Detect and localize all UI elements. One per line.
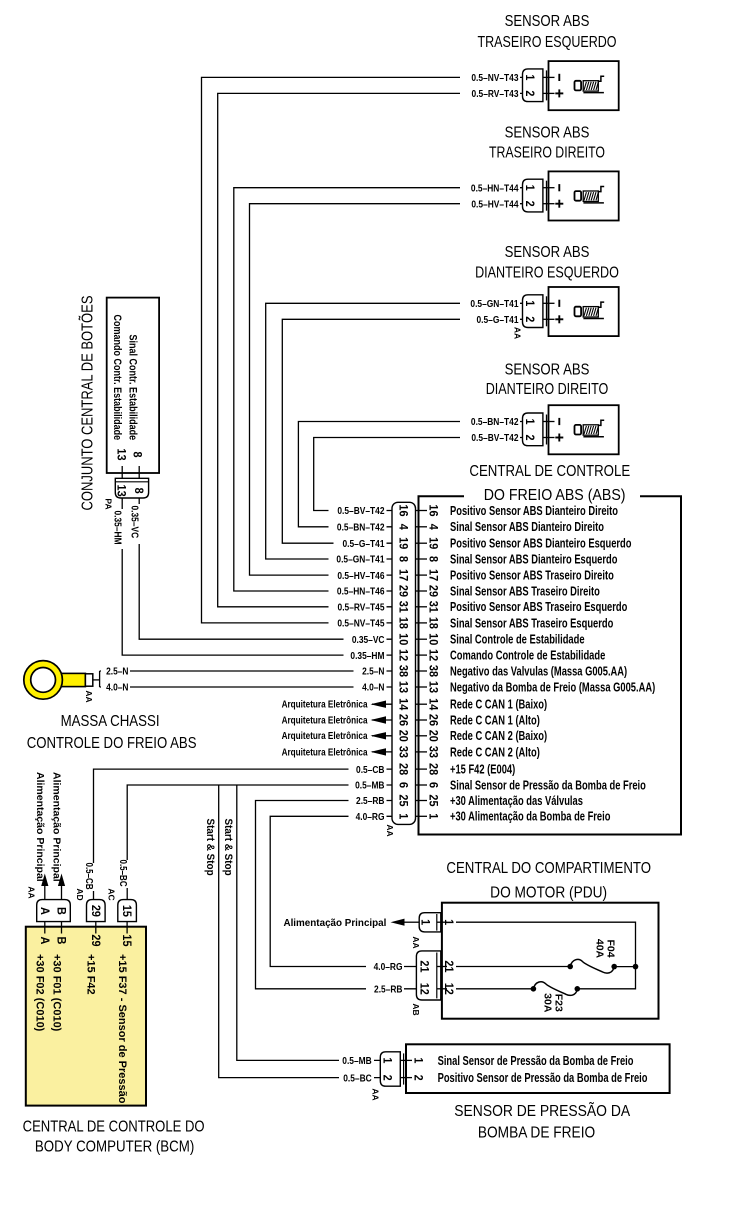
svg-text:+30 Alimentação das Válvulas: +30 Alimentação das Válvulas: [450, 795, 583, 809]
svg-text:8: 8: [130, 451, 142, 457]
svg-text:15: 15: [120, 934, 132, 946]
svg-text:33: 33: [426, 746, 438, 758]
svg-text:Arquitetura Eletrônica: Arquitetura Eletrônica: [282, 713, 369, 725]
svg-text:Sinal Sensor de Pressão da Bom: Sinal Sensor de Pressão da Bomba de Frei…: [450, 779, 646, 793]
svg-text:Sinal Sensor ABS Dianteiro Esq: Sinal Sensor ABS Dianteiro Esquerdo: [450, 553, 618, 567]
svg-text:16: 16: [396, 504, 408, 516]
svg-text:0.5–GN–T41: 0.5–GN–T41: [470, 298, 519, 310]
svg-text:TRASEIRO DIREITO: TRASEIRO DIREITO: [489, 144, 605, 162]
svg-text:2: 2: [411, 1075, 423, 1081]
svg-text:Start & Stop: Start & Stop: [204, 819, 216, 876]
svg-text:1: 1: [411, 1057, 423, 1063]
svg-text:AA: AA: [27, 886, 37, 898]
svg-text:6: 6: [396, 782, 408, 788]
svg-text:12: 12: [426, 649, 438, 661]
svg-text:2.5–N: 2.5–N: [106, 666, 129, 678]
svg-text:Sinal Contr. Estabilidade: Sinal Contr. Estabilidade: [126, 335, 138, 441]
svg-text:CENTRAL DE CONTROLE: CENTRAL DE CONTROLE: [469, 463, 630, 480]
svg-text:12: 12: [418, 983, 430, 995]
svg-text:1: 1: [380, 1057, 392, 1063]
svg-text:2: 2: [523, 201, 535, 207]
svg-text:CONTROLE DO FREIO ABS: CONTROLE DO FREIO ABS: [27, 735, 197, 752]
svg-text:0.35–HM: 0.35–HM: [111, 511, 123, 545]
svg-text:0.5–NV–T43: 0.5–NV–T43: [471, 72, 518, 84]
svg-text:15: 15: [120, 905, 132, 917]
svg-text:Comando Contr. Estabilidade: Comando Contr. Estabilidade: [111, 315, 123, 441]
svg-text:30A: 30A: [541, 993, 553, 1013]
svg-text:Positivo Sensor ABS Traseiro D: Positivo Sensor ABS Traseiro Direito: [450, 569, 614, 583]
svg-text:AA: AA: [385, 824, 395, 836]
svg-text:1: 1: [523, 185, 535, 191]
svg-text:40A: 40A: [593, 939, 605, 959]
svg-text:0.5–BV–T42: 0.5–BV–T42: [471, 432, 518, 444]
svg-text:0.5–MB: 0.5–MB: [355, 780, 385, 792]
svg-text:SENSOR ABS: SENSOR ABS: [505, 124, 590, 141]
svg-text:28: 28: [396, 763, 408, 775]
svg-text:AD: AD: [75, 888, 85, 900]
svg-text:SENSOR ABS: SENSOR ABS: [505, 361, 590, 378]
svg-text:Arquitetura Eletrônica: Arquitetura Eletrônica: [282, 745, 369, 757]
svg-text:6: 6: [426, 782, 438, 788]
svg-text:Rede C CAN 1 (Alto): Rede C CAN 1 (Alto): [450, 714, 540, 728]
svg-text:0.5–HN–T44: 0.5–HN–T44: [471, 183, 519, 195]
svg-text:Alimentação Principal: Alimentação Principal: [283, 918, 386, 929]
svg-text:0.5–CB: 0.5–CB: [356, 764, 385, 776]
svg-text:0.5–RV–T43: 0.5–RV–T43: [472, 88, 519, 100]
svg-text:13: 13: [426, 681, 438, 693]
svg-text:0.5–GN–T41: 0.5–GN–T41: [336, 554, 385, 566]
svg-text:4: 4: [426, 524, 438, 531]
svg-text:0.35–HM: 0.35–HM: [350, 650, 384, 662]
svg-text:+30 Alimentação da Bomba de Fr: +30 Alimentação da Bomba de Freio: [450, 810, 611, 824]
svg-text:20: 20: [426, 730, 438, 742]
svg-text:0.5–HV–T46: 0.5–HV–T46: [337, 570, 384, 582]
svg-text:CONJUNTO CENTRAL DE BOTÕES: CONJUNTO CENTRAL DE BOTÕES: [78, 295, 97, 510]
svg-text:1: 1: [442, 919, 454, 925]
svg-text:CENTRAL DE CONTROLE DO: CENTRAL DE CONTROLE DO: [23, 1118, 205, 1136]
svg-text:AA: AA: [411, 936, 421, 948]
svg-text:DO MOTOR (PDU): DO MOTOR (PDU): [490, 885, 607, 902]
svg-text:2.5–RB: 2.5–RB: [374, 984, 403, 996]
svg-text:2: 2: [523, 90, 535, 96]
svg-text:Negativo da Bomba de Freio (Ma: Negativo da Bomba de Freio (Massa G005.A…: [450, 681, 655, 695]
svg-text:AC: AC: [107, 888, 117, 900]
svg-text:Sinal Sensor de Pressão da Bom: Sinal Sensor de Pressão da Bomba de Frei…: [438, 1054, 634, 1068]
svg-text:DIANTEIRO ESQUERDO: DIANTEIRO ESQUERDO: [475, 264, 619, 282]
svg-text:Positivo Sensor ABS Dianteiro: Positivo Sensor ABS Dianteiro Esquerdo: [450, 537, 632, 551]
svg-text:+15 F42 (E004): +15 F42 (E004): [450, 763, 515, 777]
svg-text:Alimentação Principal: Alimentação Principal: [34, 772, 46, 882]
svg-text:8: 8: [132, 488, 144, 494]
svg-text:Sinal Sensor ABS Traseiro Esqu: Sinal Sensor ABS Traseiro Esquerdo: [450, 617, 613, 631]
svg-text:4.0–N: 4.0–N: [362, 682, 385, 694]
svg-text:13: 13: [396, 681, 408, 693]
svg-text:0.5–MB: 0.5–MB: [342, 1055, 372, 1067]
svg-text:BOMBA DE FREIO: BOMBA DE FREIO: [478, 1125, 595, 1142]
svg-text:10: 10: [396, 633, 408, 645]
svg-text:2: 2: [380, 1075, 392, 1081]
svg-text:Rede C CAN 2 (Alto): Rede C CAN 2 (Alto): [450, 746, 540, 760]
svg-text:0.5–G–T41: 0.5–G–T41: [476, 314, 519, 326]
svg-text:AA: AA: [513, 327, 523, 339]
svg-text:0.35–VC: 0.35–VC: [128, 506, 140, 539]
svg-text:PA: PA: [104, 498, 114, 509]
svg-text:0.5–HV–T44: 0.5–HV–T44: [471, 199, 519, 211]
svg-text:0.5–CB: 0.5–CB: [84, 863, 95, 891]
svg-text:2: 2: [523, 316, 535, 322]
svg-text:Sinal Sensor ABS Traseiro Dire: Sinal Sensor ABS Traseiro Direito: [450, 585, 600, 599]
svg-text:38: 38: [426, 665, 438, 677]
svg-text:25: 25: [396, 794, 408, 806]
svg-text:DO FREIO ABS (ABS): DO FREIO ABS (ABS): [484, 486, 626, 504]
svg-text:SENSOR ABS: SENSOR ABS: [505, 13, 590, 30]
svg-text:+30 F01 (C010): +30 F01 (C010): [50, 954, 62, 1032]
svg-text:33: 33: [396, 746, 408, 758]
svg-text:CENTRAL DO COMPARTIMENTO: CENTRAL DO COMPARTIMENTO: [446, 860, 651, 877]
svg-text:21: 21: [418, 960, 430, 972]
svg-text:4: 4: [396, 524, 408, 531]
svg-text:31: 31: [396, 601, 408, 613]
svg-text:8: 8: [426, 556, 438, 562]
svg-text:4.0–RG: 4.0–RG: [356, 811, 385, 823]
svg-text:Comando Controle de Estabilida: Comando Controle de Estabilidade: [450, 649, 605, 663]
svg-text:A: A: [38, 937, 50, 945]
svg-text:Rede C CAN 1 (Baixo): Rede C CAN 1 (Baixo): [450, 698, 547, 712]
svg-text:4.0–RG: 4.0–RG: [374, 961, 403, 973]
svg-text:Start & Stop: Start & Stop: [222, 819, 234, 876]
svg-text:+15 F42: +15 F42: [85, 954, 97, 995]
svg-text:MASSA CHASSI: MASSA CHASSI: [61, 713, 160, 730]
svg-text:25: 25: [426, 794, 438, 806]
svg-text:0.5–BN–T42: 0.5–BN–T42: [337, 522, 385, 534]
svg-text:AA: AA: [84, 690, 94, 702]
svg-text:20: 20: [396, 730, 408, 742]
svg-text:B: B: [54, 937, 66, 945]
svg-text:0.5–RV–T45: 0.5–RV–T45: [338, 602, 386, 614]
svg-text:Positivo Sensor de Pressão da: Positivo Sensor de Pressão da Bomba de F…: [438, 1072, 648, 1086]
svg-text:0.5–NV–T45: 0.5–NV–T45: [337, 618, 385, 630]
svg-text:17: 17: [426, 569, 438, 581]
svg-text:19: 19: [426, 537, 438, 549]
svg-text:13: 13: [114, 485, 126, 497]
svg-text:0.5–BC: 0.5–BC: [118, 860, 129, 888]
svg-text:17: 17: [396, 569, 408, 581]
svg-text:TRASEIRO ESQUERDO: TRASEIRO ESQUERDO: [477, 34, 616, 52]
svg-text:19: 19: [396, 537, 408, 549]
svg-text:18: 18: [396, 617, 408, 629]
svg-text:0.5–BC: 0.5–BC: [343, 1072, 372, 1084]
svg-text:B: B: [54, 907, 66, 915]
svg-text:2.5–N: 2.5–N: [362, 666, 385, 678]
svg-text:2.5–RB: 2.5–RB: [356, 795, 385, 807]
svg-text:BODY COMPUTER (BCM): BODY COMPUTER (BCM): [35, 1138, 194, 1155]
svg-text:SENSOR DE PRESSÃO DA: SENSOR DE PRESSÃO DA: [454, 1102, 630, 1120]
svg-text:28: 28: [426, 763, 438, 775]
svg-text:14: 14: [426, 698, 438, 711]
svg-text:26: 26: [426, 714, 438, 726]
svg-text:Sinal Controle de Estabilidade: Sinal Controle de Estabilidade: [450, 633, 585, 647]
svg-text:0.5–G–T41: 0.5–G–T41: [342, 538, 385, 550]
svg-text:0.5–BV–T42: 0.5–BV–T42: [337, 505, 384, 517]
svg-text:12: 12: [442, 983, 454, 995]
svg-text:Rede C CAN 2 (Baixo): Rede C CAN 2 (Baixo): [450, 730, 547, 744]
svg-text:26: 26: [396, 714, 408, 726]
svg-text:16: 16: [426, 504, 438, 516]
svg-text:0.5–BN–T42: 0.5–BN–T42: [471, 416, 519, 428]
svg-text:Alimentação Principal: Alimentação Principal: [51, 772, 63, 882]
svg-text:Negativo das Valvulas (Massa G: Negativo das Valvulas (Massa G005.AA): [450, 665, 627, 679]
svg-text:AB: AB: [411, 1003, 421, 1015]
svg-text:1: 1: [523, 418, 535, 424]
svg-text:Sinal Sensor ABS Dianteiro Dir: Sinal Sensor ABS Dianteiro Direito: [450, 521, 604, 535]
svg-text:Positivo Sensor ABS Traseiro E: Positivo Sensor ABS Traseiro Esquerdo: [450, 601, 627, 615]
svg-text:+30 F02 (C010): +30 F02 (C010): [34, 954, 46, 1032]
svg-text:0.5–HN–T46: 0.5–HN–T46: [337, 586, 385, 598]
svg-text:1: 1: [396, 813, 408, 819]
svg-text:31: 31: [426, 601, 438, 613]
svg-text:AA: AA: [371, 1088, 381, 1100]
svg-text:29: 29: [396, 585, 408, 597]
svg-text:12: 12: [396, 649, 408, 661]
svg-text:DIANTEIRO DIREITO: DIANTEIRO DIREITO: [486, 380, 609, 398]
svg-text:29: 29: [89, 934, 101, 946]
svg-text:4.0–N: 4.0–N: [106, 682, 129, 694]
svg-text:0.35–VC: 0.35–VC: [352, 634, 385, 646]
svg-text:14: 14: [396, 698, 408, 711]
svg-text:21: 21: [442, 960, 454, 972]
svg-text:+15 F37 - Sensor de Pressão: +15 F37 - Sensor de Pressão: [116, 954, 128, 1104]
svg-text:Positivo Sensor ABS Dianteiro: Positivo Sensor ABS Dianteiro Direito: [450, 505, 618, 519]
svg-text:8: 8: [396, 556, 408, 562]
svg-text:38: 38: [396, 665, 408, 677]
svg-text:SENSOR ABS: SENSOR ABS: [505, 244, 590, 261]
svg-text:A: A: [38, 907, 50, 915]
svg-text:10: 10: [426, 633, 438, 645]
svg-text:1: 1: [426, 813, 438, 819]
svg-text:1: 1: [523, 300, 535, 306]
svg-text:18: 18: [426, 617, 438, 629]
svg-text:Arquitetura Eletrônica: Arquitetura Eletrônica: [282, 729, 369, 741]
svg-text:2: 2: [523, 434, 535, 440]
svg-text:13: 13: [114, 448, 126, 460]
svg-text:Arquitetura Eletrônica: Arquitetura Eletrônica: [282, 698, 369, 710]
svg-text:1: 1: [419, 919, 431, 925]
svg-text:29: 29: [89, 905, 101, 917]
svg-text:29: 29: [426, 585, 438, 597]
svg-text:1: 1: [523, 74, 535, 80]
